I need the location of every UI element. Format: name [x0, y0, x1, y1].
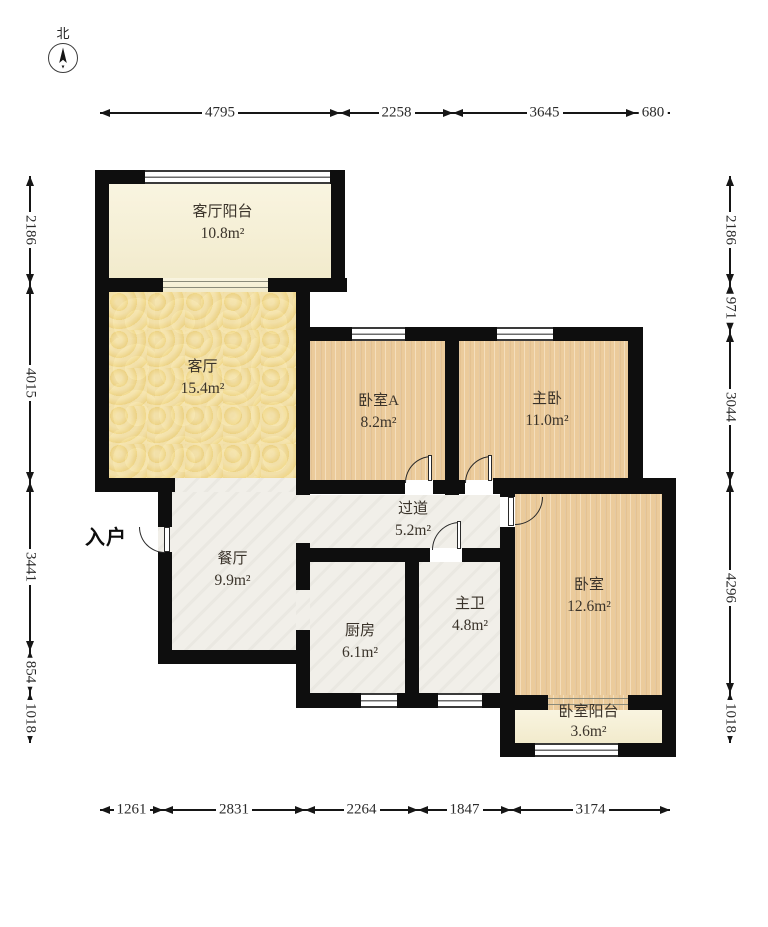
- room-label-bedroom-balcony: 卧室阳台 3.6m²: [515, 702, 662, 742]
- dimension-line: [100, 112, 670, 114]
- window: [535, 743, 618, 757]
- wall: [433, 480, 465, 494]
- room-area: 9.9m²: [165, 570, 300, 591]
- dimension-label: 680: [639, 105, 668, 122]
- dimension-arrow: [340, 109, 350, 117]
- dimension-arrow: [305, 806, 315, 814]
- room-name: 卧室A: [358, 393, 399, 409]
- dimension-arrow: [726, 683, 734, 693]
- tile-floor: [175, 478, 296, 492]
- dimension-label: 2264: [344, 802, 380, 819]
- room-label-master-bedroom: 主卧 11.0m²: [472, 389, 622, 431]
- dimension-label: 4795: [202, 105, 238, 122]
- wall: [158, 478, 172, 527]
- dimension-arrow: [660, 109, 670, 117]
- dimension-label: 3044: [722, 389, 739, 425]
- room-label-bedroom: 卧室 12.6m²: [518, 575, 660, 617]
- dimension-arrow: [153, 806, 163, 814]
- compass: 北: [45, 26, 81, 73]
- dimension-arrow: [726, 322, 734, 332]
- dimension-label: 2258: [379, 105, 415, 122]
- dimension-arrow: [453, 109, 463, 117]
- compass-ring: [48, 43, 78, 73]
- wall: [500, 527, 515, 757]
- room-area: 12.6m²: [518, 596, 660, 617]
- dimension-arrow: [726, 733, 734, 743]
- dimension-arrow: [26, 651, 34, 661]
- room-name: 餐厅: [217, 551, 247, 567]
- door-leaf: [428, 455, 432, 481]
- dimension-arrow: [26, 176, 34, 186]
- dimension-label: 2186: [722, 212, 739, 248]
- window: [361, 693, 397, 708]
- dimension-label: 2186: [22, 212, 39, 248]
- dimension-arrow: [636, 109, 646, 117]
- dimension-arrow: [443, 109, 453, 117]
- dimension-label: 3174: [573, 802, 609, 819]
- compass-needle-icon: [51, 46, 75, 70]
- wall: [500, 478, 515, 497]
- dimension-line: [100, 809, 670, 811]
- dimension-arrow: [26, 274, 34, 284]
- dimension-arrow: [726, 693, 734, 703]
- floor-plan: 北 客厅阳台 10.8m² 客厅 15.4m² 卧室A 8.2m² 主卧 11.…: [0, 0, 768, 927]
- dimension-arrow: [26, 482, 34, 492]
- wall: [95, 278, 109, 492]
- room-area: 10.8m²: [150, 223, 295, 244]
- dimension-arrow: [26, 284, 34, 294]
- dimension-arrow: [660, 806, 670, 814]
- dimension-line: [729, 176, 731, 743]
- dimension-arrow: [100, 109, 110, 117]
- dimension-arrow: [163, 806, 173, 814]
- dimension-label: 3645: [527, 105, 563, 122]
- door-leaf: [488, 455, 492, 481]
- dimension-label: 1261: [114, 802, 150, 819]
- window: [145, 170, 330, 184]
- dimension-arrow: [511, 806, 521, 814]
- room-name: 客厅阳台: [192, 204, 252, 220]
- room-label-bedroom-a: 卧室A 8.2m²: [311, 391, 446, 433]
- dimension-arrow: [418, 806, 428, 814]
- wall: [445, 341, 459, 495]
- dimension-arrow: [726, 176, 734, 186]
- room-name: 主卫: [455, 596, 485, 612]
- room-name: 卧室阳台: [558, 704, 618, 720]
- wall: [95, 170, 109, 292]
- dimension-arrow: [726, 284, 734, 294]
- room-label-living-balcony: 客厅阳台 10.8m²: [150, 202, 295, 244]
- door-swing-arc: [139, 527, 165, 553]
- dimension-label: 854: [22, 658, 39, 687]
- dimension-arrow: [26, 641, 34, 651]
- wall: [296, 480, 405, 494]
- room-name: 卧室: [574, 577, 604, 593]
- dimension-arrow: [295, 806, 305, 814]
- room-name: 过道: [398, 501, 428, 517]
- dimension-arrow: [100, 806, 110, 814]
- room-label-kitchen: 厨房 6.1m²: [305, 621, 415, 663]
- dimension-arrow: [501, 806, 511, 814]
- dimension-arrow: [330, 109, 340, 117]
- wall: [331, 170, 345, 292]
- dimension-line: [29, 176, 31, 743]
- wall: [493, 478, 676, 494]
- room-label-dining-room: 餐厅 9.9m²: [165, 549, 300, 591]
- dimension-arrow: [726, 332, 734, 342]
- door-leaf: [508, 497, 514, 526]
- room-area: 15.4m²: [130, 378, 275, 399]
- wall: [158, 650, 310, 664]
- entrance-label: 入户: [85, 521, 127, 550]
- sliding-door: [163, 281, 268, 288]
- dimension-arrow: [726, 482, 734, 492]
- wall: [296, 278, 310, 495]
- room-area: 5.2m²: [348, 520, 478, 541]
- dimension-arrow: [726, 472, 734, 482]
- dimension-arrow: [26, 472, 34, 482]
- room-label-master-bath: 主卫 4.8m²: [415, 594, 525, 636]
- room-name: 主卧: [532, 391, 562, 407]
- window: [438, 693, 482, 708]
- room-label-hallway: 过道 5.2m²: [348, 499, 478, 541]
- room-area: 3.6m²: [515, 722, 662, 742]
- room-name: 客厅: [187, 359, 217, 375]
- room-area: 8.2m²: [311, 412, 446, 433]
- dimension-label: 1018: [22, 700, 39, 736]
- dimension-arrow: [726, 274, 734, 284]
- dimension-label: 1018: [722, 700, 739, 736]
- wall: [296, 327, 643, 341]
- window: [497, 327, 553, 341]
- compass-north-label: 北: [45, 26, 81, 41]
- wall: [662, 484, 676, 757]
- window: [352, 327, 405, 341]
- dimension-label: 2831: [216, 802, 252, 819]
- dimension-arrow: [26, 733, 34, 743]
- dimension-label: 3441: [22, 549, 39, 585]
- wall: [628, 327, 643, 484]
- dimension-arrow: [408, 806, 418, 814]
- room-label-living-room: 客厅 15.4m²: [130, 357, 275, 399]
- room-area: 4.8m²: [415, 615, 525, 636]
- dimension-label: 4015: [22, 365, 39, 401]
- dimension-label: 4296: [722, 570, 739, 606]
- dimension-arrow: [26, 683, 34, 693]
- room-name: 厨房: [345, 623, 375, 639]
- dimension-arrow: [626, 109, 636, 117]
- room-area: 6.1m²: [305, 642, 415, 663]
- dimension-label: 1847: [447, 802, 483, 819]
- dimension-arrow: [26, 693, 34, 703]
- dimension-label: 971: [722, 294, 739, 323]
- wall: [296, 693, 515, 708]
- room-area: 11.0m²: [472, 410, 622, 431]
